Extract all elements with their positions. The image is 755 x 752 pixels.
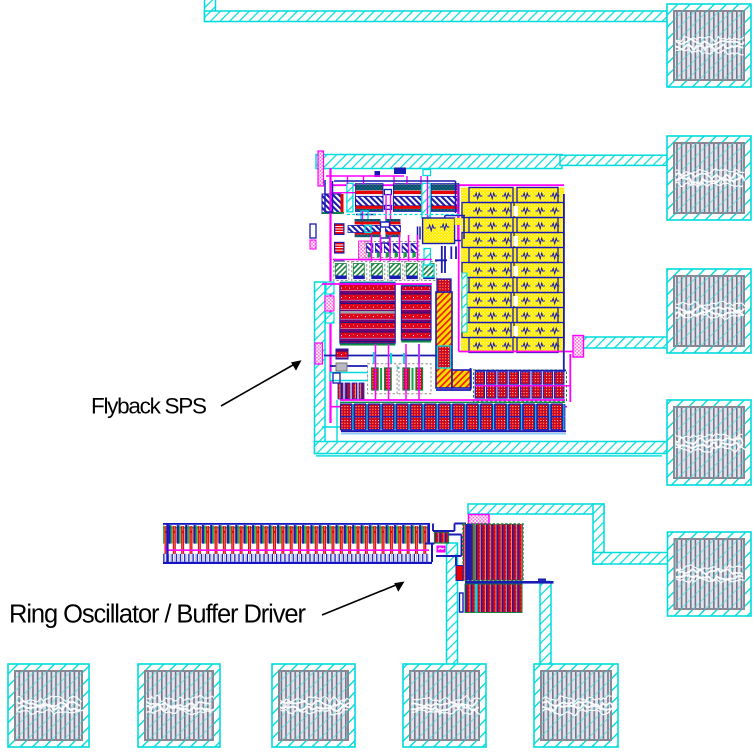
svg-text:Ring Oscillator / Buffer Drive: Ring Oscillator / Buffer Driver bbox=[9, 601, 307, 629]
svg-text:Flyback SPS: Flyback SPS bbox=[91, 394, 207, 419]
